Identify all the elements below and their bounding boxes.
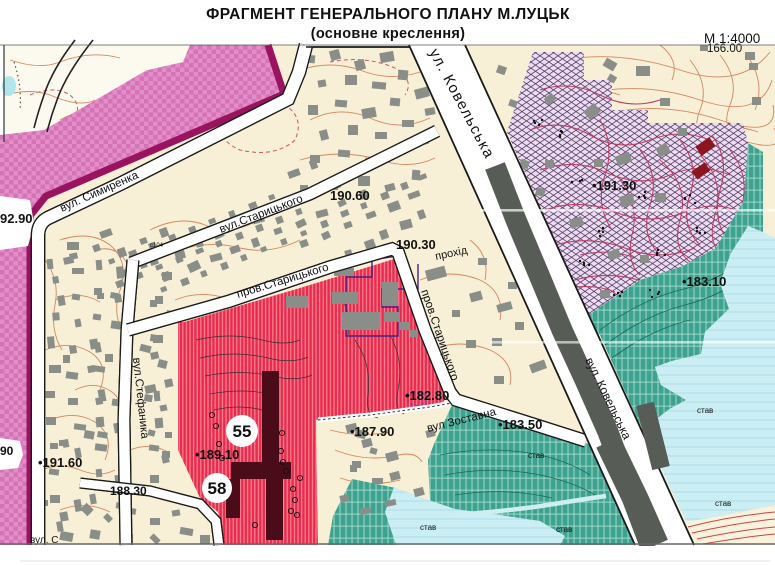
svg-text:190.60: 190.60 [330, 188, 370, 203]
svg-text:став: став [556, 525, 572, 534]
svg-text:•183.10: •183.10 [682, 274, 726, 289]
svg-text:став: став [715, 499, 731, 508]
svg-text:став: став [697, 406, 713, 415]
svg-text:с104: с104 [150, 243, 164, 249]
svg-text:•191.60: •191.60 [38, 455, 82, 470]
svg-text:58: 58 [208, 479, 227, 498]
svg-text:•182.80: •182.80 [405, 388, 449, 403]
svg-text:92.90: 92.90 [0, 211, 33, 226]
svg-text:ФРАГМЕНТ ГЕНЕРАЛЬНОГО ПЛАНУ М.: ФРАГМЕНТ ГЕНЕРАЛЬНОГО ПЛАНУ М.ЛУЦЬК [206, 6, 570, 23]
svg-text:•183.50: •183.50 [498, 417, 542, 432]
svg-text:190.30: 190.30 [396, 237, 436, 252]
svg-text:•191.30: •191.30 [592, 178, 636, 193]
svg-text:•187.90: •187.90 [350, 424, 394, 439]
svg-text:став: став [420, 523, 436, 532]
svg-text:188.30: 188.30 [110, 484, 147, 498]
svg-text:55: 55 [233, 422, 252, 441]
svg-text:(основне креслення): (основне креслення) [311, 26, 466, 42]
svg-text:М 1:4000: М 1:4000 [704, 31, 760, 46]
svg-text:90: 90 [0, 444, 14, 458]
svg-text:став: став [528, 451, 544, 460]
svg-text:•189.10: •189.10 [195, 447, 239, 462]
